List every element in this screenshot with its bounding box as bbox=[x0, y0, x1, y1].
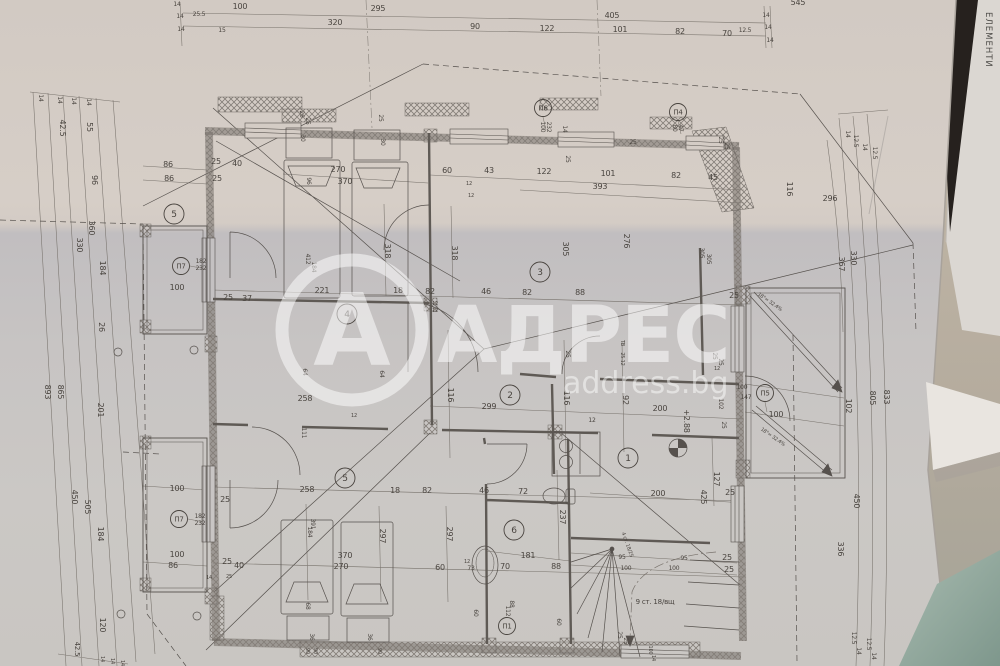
dim-label: 14 bbox=[766, 37, 774, 44]
dim-label: 12.5 bbox=[850, 632, 857, 645]
dim-label: 12 bbox=[468, 193, 474, 199]
dim-label: 82 bbox=[675, 27, 685, 36]
dim-label: 30 bbox=[299, 134, 306, 142]
element-tag-label: П7 bbox=[174, 516, 183, 524]
dim-label: 12.5 bbox=[865, 638, 872, 651]
dim-label: 25 bbox=[222, 557, 232, 566]
dim-label: 545 bbox=[791, 0, 806, 7]
room-number-label: 5 bbox=[342, 474, 348, 484]
element-tag-label: П5 bbox=[760, 390, 769, 398]
dim-label: 25 bbox=[724, 565, 734, 574]
dim-label: 405 bbox=[605, 11, 620, 20]
dim-label: 80 bbox=[671, 124, 678, 132]
dim-label: 30 bbox=[379, 138, 386, 146]
dim-label: 14 bbox=[37, 94, 44, 102]
dim-label: 100 bbox=[170, 550, 185, 559]
dim-label: 305 bbox=[698, 248, 705, 259]
dim-label: 86 bbox=[164, 174, 174, 183]
dim-label: 70 bbox=[500, 562, 510, 571]
dim-label: 95 bbox=[680, 555, 688, 562]
room-number-label: 1 bbox=[625, 454, 631, 464]
dim-label: 14 bbox=[99, 656, 105, 662]
element-tag-label: П1 bbox=[502, 623, 511, 631]
room-number-label: 3 bbox=[537, 268, 543, 278]
dim-label: 70 bbox=[722, 29, 732, 38]
dim-label: 9 ст. 18/вщ bbox=[636, 598, 675, 606]
dim-label: 14 bbox=[70, 97, 77, 105]
dim-label: 14 bbox=[85, 98, 92, 106]
dim-label: 25 bbox=[722, 553, 732, 562]
dim-label: 25.5 bbox=[193, 11, 206, 18]
dim-label: 318 bbox=[450, 246, 459, 261]
dim-label: 181 bbox=[521, 551, 536, 560]
room-number-label: 2 bbox=[507, 391, 513, 401]
dim-label: 14 bbox=[762, 12, 770, 19]
dim-label: 14 bbox=[855, 647, 862, 655]
dim-label: 12.5 bbox=[852, 135, 859, 148]
dim-label: 14 bbox=[173, 1, 181, 8]
dim-label: 73 bbox=[467, 565, 475, 572]
dim-label: 26 bbox=[298, 110, 305, 118]
dim-label: 425 bbox=[699, 490, 708, 505]
dim-label: 120 bbox=[98, 618, 107, 633]
dim-label: 270 bbox=[334, 562, 349, 571]
dim-label: 14 bbox=[561, 125, 568, 133]
dim-label: 37 bbox=[242, 294, 252, 303]
dim-label: 72 bbox=[518, 487, 528, 496]
watermark-logo-letter: А bbox=[313, 272, 390, 389]
dim-label: 370 bbox=[338, 177, 353, 186]
dim-label: 100 bbox=[769, 410, 784, 419]
dim-label: 18 bbox=[390, 486, 400, 495]
dim-label: 330 bbox=[75, 238, 84, 253]
dim-label: 68 bbox=[304, 602, 311, 610]
floorplan-svg: ЕЛЕМЕНТИ bbox=[0, 0, 1000, 666]
dim-label: 276 bbox=[622, 234, 631, 249]
dim-label: 182 bbox=[195, 513, 206, 520]
dim-label: 184 bbox=[96, 527, 105, 542]
dim-label: 370 bbox=[338, 551, 353, 560]
dim-label: 25 bbox=[377, 114, 384, 122]
dim-label: 100 bbox=[233, 2, 248, 11]
dim-label: 102 bbox=[844, 399, 853, 414]
dim-label: 40 bbox=[234, 561, 244, 570]
watermark-site: address.bg bbox=[563, 366, 728, 401]
dim-label: 330 bbox=[849, 251, 858, 266]
dim-label: 25 bbox=[564, 155, 571, 163]
element-tag-label: П4 bbox=[673, 109, 683, 117]
dim-label: 258 bbox=[300, 485, 315, 494]
level-mark bbox=[669, 439, 687, 457]
element-tag-label: П6 bbox=[538, 105, 548, 113]
dim-label: 232 bbox=[545, 122, 552, 133]
dim-label: 14 bbox=[176, 13, 184, 20]
room-number-label: 5 bbox=[171, 210, 177, 220]
dim-label: 90 bbox=[470, 22, 480, 31]
dim-label: 336 bbox=[836, 542, 845, 557]
dim-label: 100 bbox=[647, 646, 653, 655]
dim-label: 360 bbox=[87, 221, 96, 236]
dim-label: 25 bbox=[226, 574, 232, 580]
dim-label: 25 bbox=[212, 174, 222, 183]
dim-label: 82 bbox=[671, 171, 681, 180]
dim-label: 14 bbox=[206, 575, 212, 581]
dim-label: 60 bbox=[472, 609, 479, 617]
side-sheet-vertical-text: ЕЛЕМЕНТИ bbox=[983, 12, 993, 68]
dim-label: 833 bbox=[882, 390, 891, 405]
dim-label: 25 bbox=[725, 488, 735, 497]
dim-label: 25 bbox=[220, 495, 230, 504]
dim-label: 297 bbox=[445, 527, 454, 542]
dim-label: 100 bbox=[669, 565, 680, 572]
dim-label: 270 bbox=[331, 165, 346, 174]
dim-label: 14 bbox=[177, 26, 185, 33]
dim-label: 96 bbox=[90, 175, 99, 185]
dim-label: 505 bbox=[83, 500, 92, 515]
dim-label: 450 bbox=[70, 490, 79, 505]
dim-label: 147 bbox=[741, 394, 752, 401]
dim-label: 25 bbox=[223, 293, 233, 302]
dim-label: 393 bbox=[593, 182, 608, 191]
dim-label: 14 bbox=[650, 655, 656, 661]
dim-label: 14 bbox=[870, 652, 877, 660]
dim-label: 201 bbox=[96, 403, 105, 418]
dim-label: 95 bbox=[618, 554, 626, 561]
element-tag-label: П7 bbox=[176, 263, 185, 271]
dim-label: 25 bbox=[629, 139, 637, 146]
dim-label: 232 bbox=[196, 265, 207, 272]
dim-label: 296 bbox=[823, 194, 838, 203]
dim-label: 305 bbox=[561, 242, 570, 257]
dim-label: 14 bbox=[764, 24, 772, 31]
dim-label: 101 bbox=[601, 169, 616, 178]
dim-label: 96 bbox=[305, 177, 312, 185]
dim-label: 36 bbox=[308, 633, 315, 641]
dim-label: 45 bbox=[708, 173, 718, 182]
dim-label: 86 bbox=[163, 160, 173, 169]
dim-label: 14 bbox=[56, 96, 63, 104]
dim-label: 12 bbox=[466, 181, 472, 187]
dim-label: 43 bbox=[484, 166, 494, 175]
dim-label: 26 bbox=[97, 322, 106, 332]
dim-label: 237 bbox=[558, 510, 567, 525]
dim-label: 320 bbox=[328, 18, 343, 27]
dim-label: 100 bbox=[737, 384, 748, 391]
dim-label: 116 bbox=[785, 182, 794, 197]
dim-label: 200 bbox=[651, 489, 666, 498]
dim-label: 297 bbox=[378, 529, 387, 544]
dim-label: 14 bbox=[844, 130, 851, 138]
dim-label: 412 bbox=[304, 254, 311, 265]
dim-label: 60 bbox=[555, 618, 562, 626]
dim-label: 47 bbox=[677, 124, 684, 132]
dim-label: 14 bbox=[109, 658, 115, 664]
dim-label: 100 bbox=[621, 565, 632, 572]
dim-label: 42.5 bbox=[58, 119, 67, 136]
dim-label: 90 bbox=[312, 648, 318, 654]
dim-label: 88 bbox=[551, 562, 561, 571]
dim-label: 25 bbox=[211, 157, 221, 166]
dim-label: 12 bbox=[588, 417, 596, 424]
dim-label: 182 bbox=[196, 258, 207, 265]
dim-label: 82 bbox=[425, 287, 435, 296]
dim-label: 318 bbox=[383, 244, 392, 259]
dim-label: 25 bbox=[616, 631, 623, 639]
dim-label: 258 bbox=[298, 394, 313, 403]
dim-label: 25 bbox=[720, 421, 727, 429]
dim-label: 36 bbox=[366, 633, 373, 641]
dim-label: 127 bbox=[712, 472, 721, 487]
dim-label: 295 bbox=[371, 4, 386, 13]
dim-label: 367 bbox=[837, 257, 846, 272]
dim-label: 893 bbox=[43, 385, 52, 400]
dim-label: 46 bbox=[479, 486, 489, 495]
dim-label: 100 bbox=[170, 484, 185, 493]
dim-label: 25 bbox=[729, 291, 739, 300]
dim-label: 14 bbox=[119, 660, 125, 666]
dim-label: 86 bbox=[168, 561, 178, 570]
dim-label: 15 bbox=[218, 27, 226, 34]
dim-label: 82 bbox=[422, 486, 432, 495]
dim-label: 42.5 bbox=[73, 642, 81, 657]
dim-label: 200 bbox=[653, 404, 668, 413]
dim-label: 450 bbox=[852, 494, 861, 509]
dim-label: 101 bbox=[613, 25, 628, 34]
dim-label: 122 bbox=[540, 24, 555, 33]
dim-label: 232 bbox=[195, 520, 206, 527]
dim-label: 90 bbox=[304, 648, 310, 654]
floorplan-photo: ЕЛЕМЕНТИ bbox=[0, 0, 1000, 666]
dim-label: 12.5 bbox=[871, 147, 878, 160]
dim-label: 60 bbox=[435, 563, 445, 572]
dim-label: 40 bbox=[232, 159, 242, 168]
dim-label: 12.5 bbox=[739, 27, 752, 34]
dim-label: 12 bbox=[351, 413, 357, 419]
dim-label: 14 bbox=[861, 143, 868, 151]
dim-label: 25 bbox=[304, 117, 311, 125]
dim-label: 55 bbox=[85, 122, 94, 132]
dim-label: +2.88 bbox=[682, 409, 691, 433]
dim-label: 100 bbox=[170, 283, 185, 292]
dim-label: 184 bbox=[306, 527, 313, 538]
dim-label: 116 bbox=[446, 388, 455, 403]
dim-label: 60 bbox=[442, 166, 452, 175]
room-number-label: 6 bbox=[511, 526, 517, 536]
dim-label: 805 bbox=[868, 391, 877, 406]
dim-label: 184 bbox=[98, 261, 107, 276]
dim-label: 25 bbox=[723, 142, 730, 150]
dim-label: 25 bbox=[622, 637, 629, 645]
dim-label: 122 bbox=[537, 167, 552, 176]
dim-label: 111 bbox=[300, 428, 307, 439]
dim-label: 305 bbox=[705, 254, 712, 265]
dim-label: 100 bbox=[539, 122, 546, 133]
dim-label: 25 bbox=[717, 136, 724, 144]
dim-label: 865 bbox=[56, 385, 65, 400]
dim-label: 112 bbox=[504, 606, 511, 617]
dim-label: 299 bbox=[482, 402, 497, 411]
dim-label: 90 bbox=[376, 648, 382, 654]
